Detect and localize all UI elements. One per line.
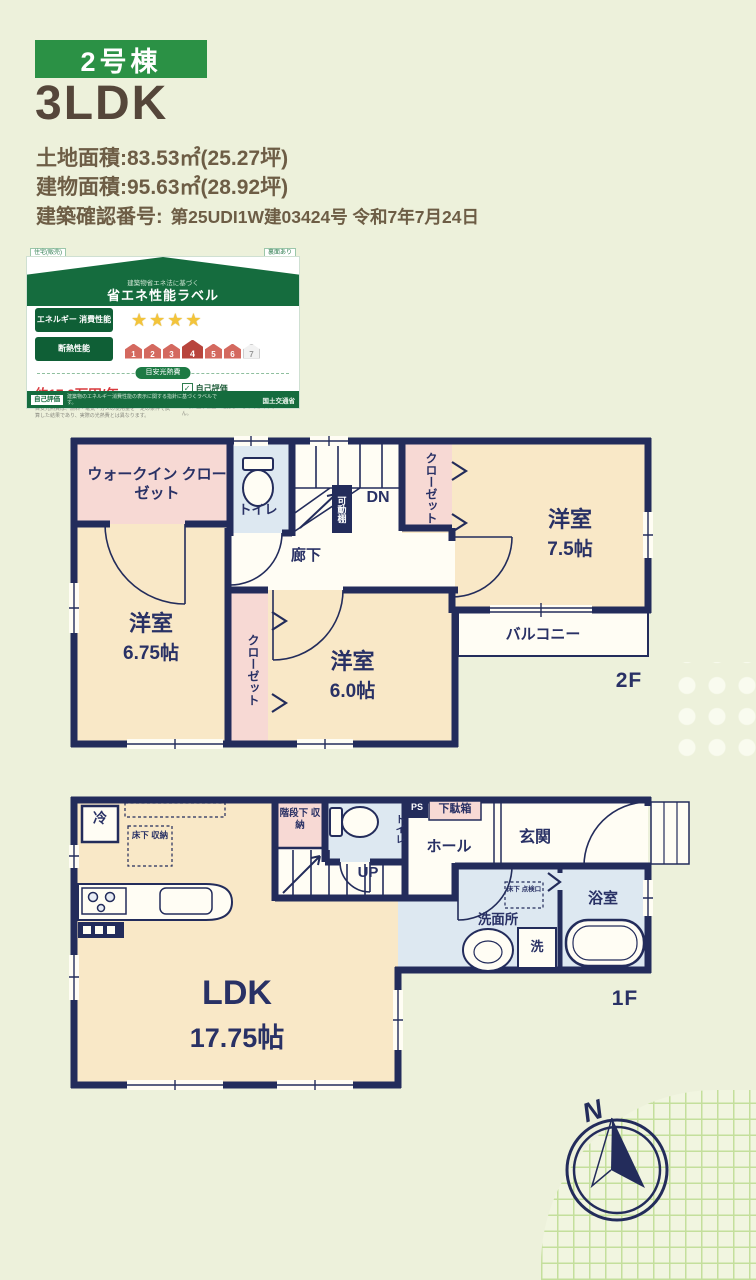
toilet-label-1f: トイレ [388, 805, 406, 853]
stairs-dn-label: DN [358, 488, 398, 508]
room-label-75: 洋室7.5帖 [480, 506, 660, 561]
room-label-wic: ウォークイン クローゼット [82, 466, 232, 504]
scale-house-1: 1 [125, 344, 142, 359]
floor-plan-2f: ウォークイン クローゼット トイレ DN 可動棚 クローゼット 洋室7.5帖 廊… [60, 430, 660, 752]
washroom-label: 洗面所 [458, 912, 538, 929]
confirmation-label: 建築確認番号: [36, 202, 163, 232]
scale-house-7: 7 [243, 344, 260, 359]
wash-basin [463, 929, 513, 971]
energy-consumption-label: エネルギー 消費性能 [35, 308, 113, 332]
entrance-porch [651, 802, 689, 864]
footer-authority: 国土交通省 [263, 395, 296, 405]
kitchen-sink [160, 888, 212, 914]
insulation-row: 断熱性能 1 2 3 4 5 6 7 [35, 337, 291, 361]
closet-label-mid-2f: クローゼット [234, 598, 262, 742]
ps-label: PS [405, 802, 429, 813]
balcony-label: バルコニー [473, 626, 613, 645]
room-label-675: 洋室6.75帖 [75, 610, 227, 665]
building-area-line: 建物面積:95.63㎡(28.92坪) [36, 173, 479, 202]
hall-label: ホール [414, 838, 484, 857]
scale-house-6: 6 [224, 344, 241, 359]
inspection-hatch-label: 床下 点検口 [504, 886, 544, 894]
flyer-page: 2号棟 3LDK 土地面積:83.53㎡(25.27坪) 建物面積:95.63㎡… [0, 0, 756, 1280]
room-label-60: 洋室6.0帖 [275, 648, 430, 703]
scale-house-4: 4 [182, 340, 203, 359]
property-info: 土地面積:83.53㎡(25.27坪) 建物面積:95.63㎡(28.92坪) … [36, 144, 479, 232]
ldk-label: LDK17.75帖 [157, 972, 317, 1057]
footer-note: 建築物のエネルギー消費性能の表示に関する指針に基づくラベルです。 [67, 394, 217, 406]
fridge-label: 冷 [86, 810, 114, 828]
cost-divider: 目安光熱費 [37, 373, 289, 374]
stairs-up-label: UP [350, 864, 386, 883]
bathtub [566, 920, 644, 966]
shoe-box-label: 下駄箱 [430, 803, 480, 817]
toilet-fixture-1f [330, 807, 378, 837]
toilet-fixture-2f [243, 458, 273, 506]
closet-label-right-2f: クローゼット [412, 446, 440, 530]
scale-house-2: 2 [144, 344, 161, 359]
bathroom-label: 浴室 [573, 890, 633, 909]
confirmation-value: 第25UDI1W建03424号 令和7年7月24日 [171, 202, 479, 232]
room-label-toilet-2f: トイレ [230, 502, 286, 518]
insulation-label: 断熱性能 [35, 337, 113, 361]
floor-tag-2f: 2F [604, 668, 654, 694]
building-number-badge: 2号棟 [35, 40, 207, 78]
under-stairs-storage-label: 階段下 収納 [276, 808, 324, 832]
cost-label: 目安光熱費 [136, 367, 191, 379]
hallway-label: 廊下 [276, 547, 336, 566]
floor-plan-1f: 冷 床下 収納 階段下 収納 トイレ UP PS 下駄箱 ホール 玄関 床下 点… [60, 790, 756, 1110]
energy-label-subtitle: 建築物省エネ法に基づく [127, 280, 199, 288]
movable-shelf-label: 可動棚 [336, 496, 349, 523]
washer-label: 洗 [525, 939, 549, 955]
land-area-line: 土地面積:83.53㎡(25.27坪) [36, 144, 479, 173]
energy-consumption-row: エネルギー 消費性能 ★★★★ [35, 308, 291, 332]
energy-label-footer: 自己評価 建築物のエネルギー消費性能の表示に関する指針に基づくラベルです。 国土… [27, 391, 299, 408]
compass [555, 1100, 685, 1230]
scale-house-3: 3 [163, 344, 180, 359]
floor-tag-1f: 1F [600, 986, 650, 1012]
page-title-3ldk: 3LDK [35, 76, 168, 131]
entrance-label: 玄関 [500, 828, 570, 848]
insulation-scale: 1 2 3 4 5 6 7 [125, 340, 260, 359]
energy-label-title: 省エネ性能ラベル [107, 288, 219, 303]
footer-chip: 自己評価 [31, 395, 63, 405]
star-rating: ★★★★ [131, 310, 204, 331]
dot-pattern-decoration [668, 662, 756, 762]
scale-house-5: 5 [205, 344, 222, 359]
movable-shelf-chip: 可動棚 [332, 485, 352, 533]
energy-performance-label: 住宅(販売) 裏面あり 建築物省エネ法に基づく 省エネ性能ラベル エネルギー 消… [27, 248, 299, 408]
energy-label-card: 建築物省エネ法に基づく 省エネ性能ラベル エネルギー 消費性能 ★★★★ 断熱性… [27, 257, 299, 408]
cost-note: 目安光熱費は、燃料・電気・ガスの使用量を一定の条件で試算した結果であり、実際の光… [35, 406, 174, 420]
confirmation-line: 建築確認番号: 第25UDI1W建03424号 令和7年7月24日 [36, 202, 479, 232]
underfloor-storage-label: 床下 収納 [130, 830, 170, 841]
